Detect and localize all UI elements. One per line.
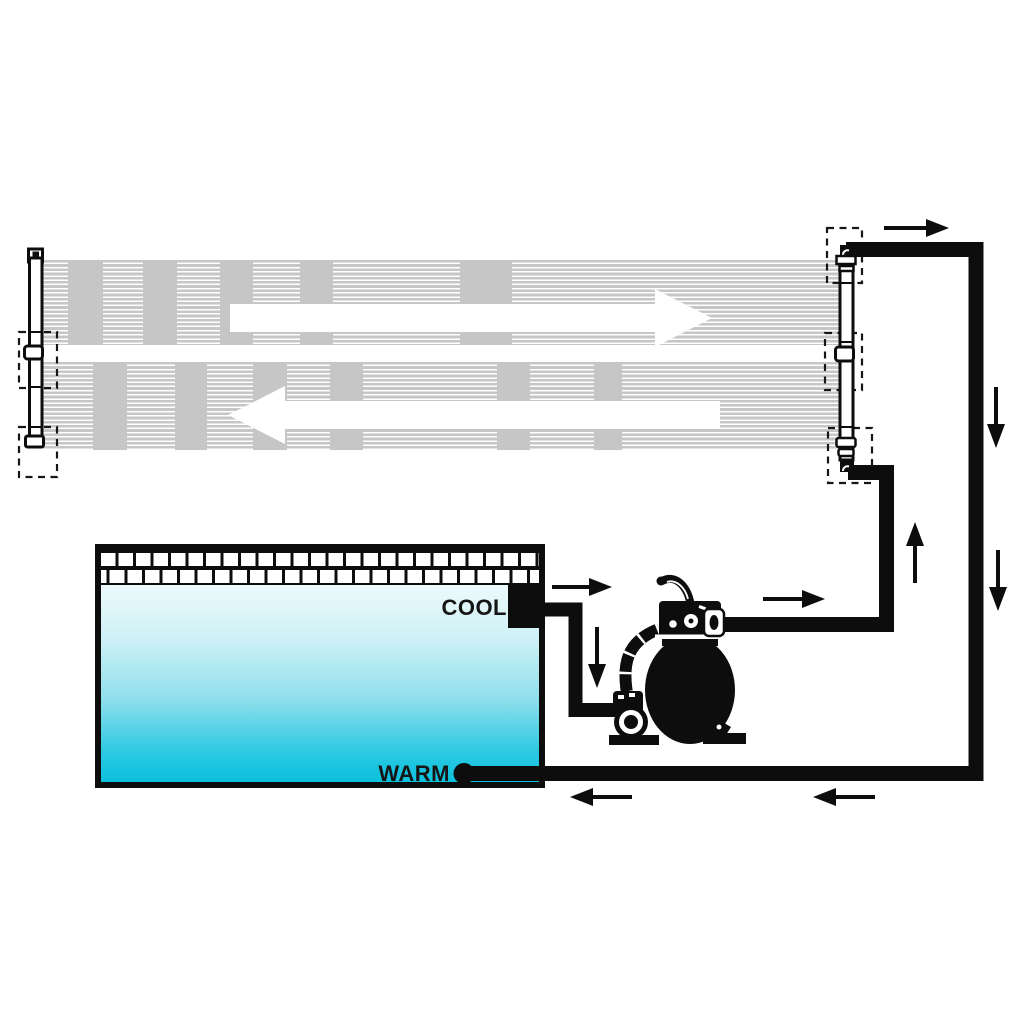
flow-direction-arrow-icon — [884, 219, 949, 237]
right-manifold — [836, 256, 856, 460]
flow-direction-arrow-icon — [552, 578, 612, 596]
flow-direction-arrow-icon — [906, 522, 924, 583]
flow-direction-arrow-icon — [987, 387, 1005, 448]
cool-label: COOL — [441, 597, 507, 619]
flow-direction-arrow-icon — [588, 627, 606, 688]
flow-arrow-right-icon — [230, 289, 712, 347]
flow-direction-arrow-icon — [763, 590, 825, 608]
warm-inlet-cap — [454, 763, 475, 784]
cool-water-pipe — [545, 610, 617, 711]
dashed-fitting-boxes — [19, 228, 872, 483]
flow-direction-arrow-icon — [570, 788, 632, 806]
sand-filter-pump — [609, 577, 746, 746]
flow-direction-arrow-icon — [813, 788, 875, 806]
flow-direction-arrow-icon — [989, 550, 1007, 611]
flow-arrow-left-icon — [228, 386, 720, 444]
skimmer-box — [508, 583, 542, 628]
left-manifold — [25, 249, 44, 447]
solar-pool-heater-diagram: COOL WARM — [0, 0, 1024, 1024]
warm-label: WARM — [378, 763, 450, 785]
